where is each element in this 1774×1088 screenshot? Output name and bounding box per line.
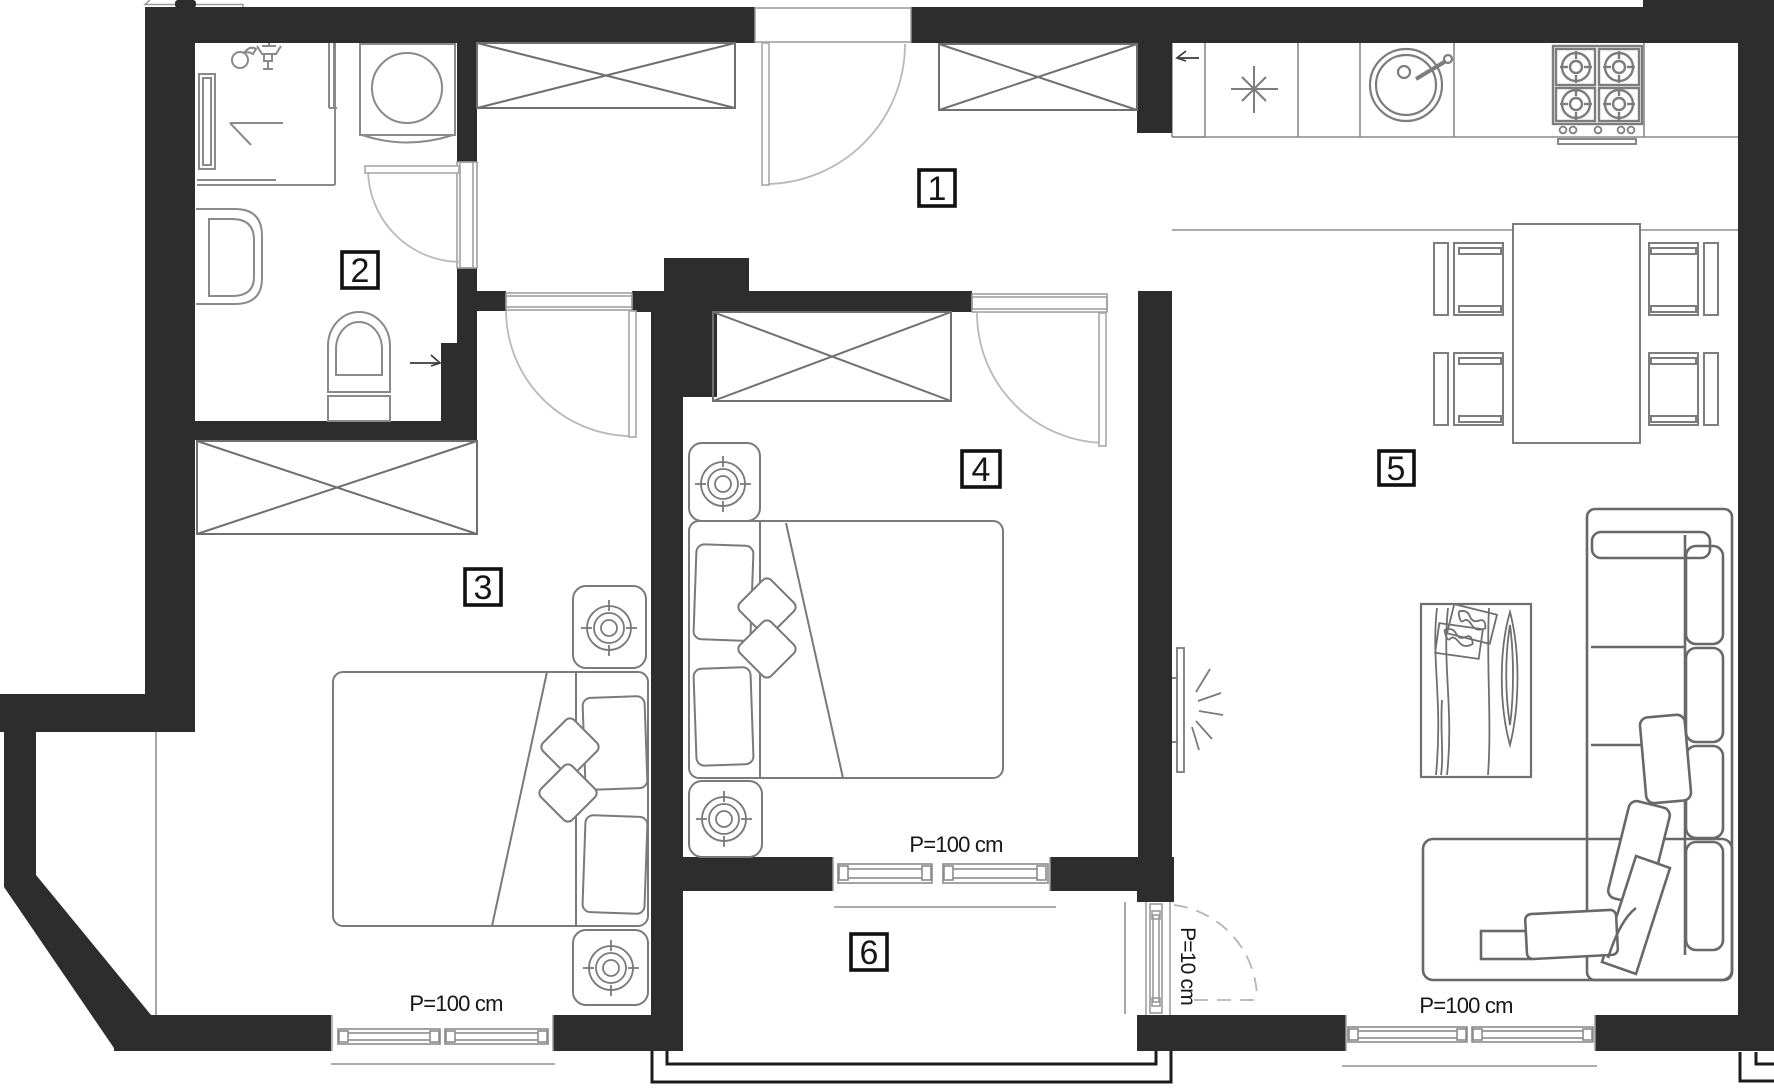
- svg-text:P=100 cm: P=100 cm: [1419, 993, 1512, 1018]
- svg-text:6: 6: [860, 934, 879, 972]
- svg-text:P=100 cm: P=100 cm: [909, 832, 1002, 857]
- svg-text:5: 5: [1387, 450, 1406, 488]
- svg-text:2: 2: [351, 252, 370, 290]
- svg-text:P=10 cm: P=10 cm: [1176, 927, 1199, 1005]
- svg-text:1: 1: [928, 170, 947, 208]
- svg-text:4: 4: [972, 451, 991, 489]
- svg-text:3: 3: [474, 569, 493, 607]
- svg-text:P=100 cm: P=100 cm: [409, 991, 502, 1016]
